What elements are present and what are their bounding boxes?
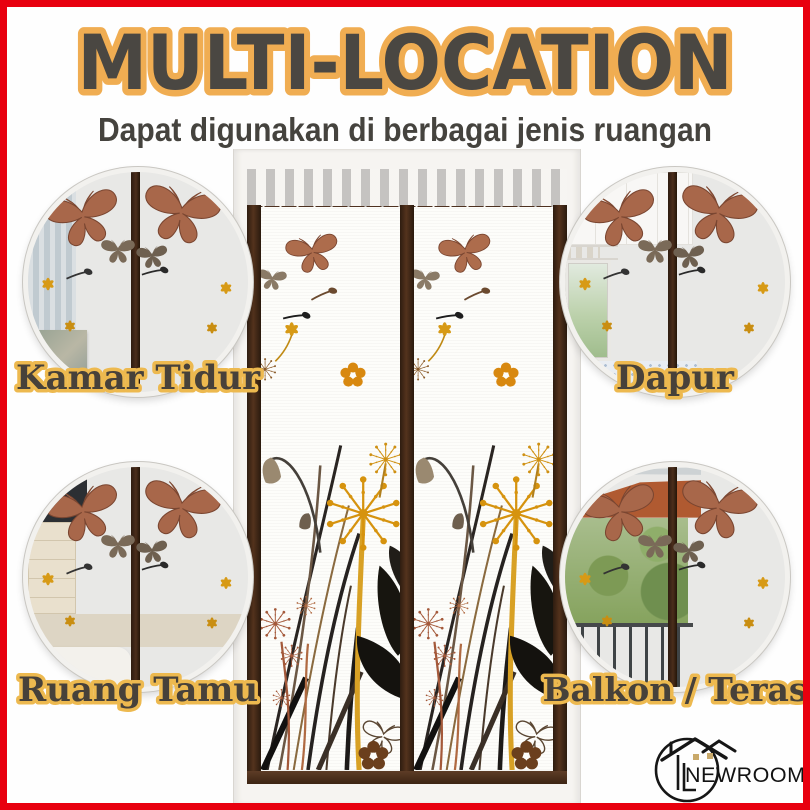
title-text: MULTI-LOCATION (78, 18, 733, 107)
balcony-photo (560, 462, 790, 692)
living-room-photo (23, 462, 253, 692)
curtain-panel-left (261, 207, 400, 770)
promo-poster: MULTI-LOCATION Dapat digunakan di berbag… (0, 0, 810, 810)
brand-logo: NEWROOM88 (637, 725, 807, 807)
room-label-kamar-tidur: Kamar Tidur (8, 355, 268, 403)
door-curtain-product (233, 149, 581, 805)
page-title: MULTI-LOCATION (7, 17, 803, 117)
room-card-kamar-tidur: Kamar Tidur (23, 167, 253, 397)
logo-text: NEWROOM88 (685, 763, 807, 787)
svg-text:Balkon / Teras: Balkon / Teras (543, 670, 808, 709)
room-card-dapur: Dapur (560, 167, 790, 397)
curtain-bottom-rail (247, 771, 567, 784)
page-subtitle: Dapat digunakan di berbagai jenis ruanga… (7, 109, 803, 153)
window-icon (707, 753, 713, 759)
curtain-overlay (565, 467, 785, 687)
curtain-valance (247, 169, 567, 207)
svg-text:Kamar Tidur: Kamar Tidur (16, 358, 261, 398)
curtain-overlay (28, 467, 248, 687)
svg-text:Dapur: Dapur (616, 358, 735, 398)
curtain-frame-center (400, 205, 414, 784)
room-card-ruang-tamu: Ruang Tamu (23, 462, 253, 692)
curtain-panel-right (414, 207, 553, 770)
room-label-balkon-teras: Balkon / Teras (545, 667, 805, 715)
svg-text:Ruang Tamu: Ruang Tamu (18, 670, 258, 710)
room-label-ruang-tamu: Ruang Tamu (8, 667, 268, 715)
room-label-dapur: Dapur (545, 355, 805, 403)
window-icon (693, 754, 699, 760)
room-card-balkon-teras: Balkon / Teras (560, 462, 790, 692)
subtitle-text: Dapat digunakan di berbagai jenis ruanga… (98, 111, 712, 148)
